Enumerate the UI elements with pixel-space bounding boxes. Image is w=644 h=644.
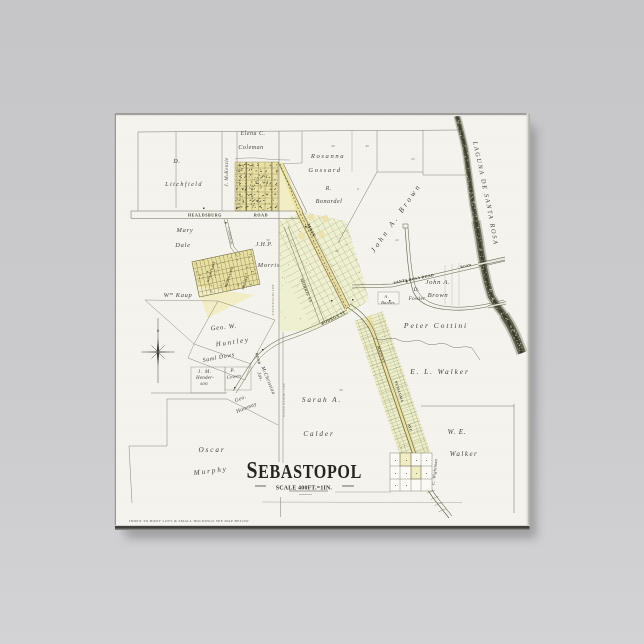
svg-text:Dale: Dale: [174, 242, 191, 249]
svg-text:D.: D.: [172, 158, 181, 165]
svg-text:Morris: Morris: [257, 262, 281, 269]
svg-text:John A.: John A.: [426, 279, 451, 286]
svg-text:J. McKenzie: J. McKenzie: [224, 157, 230, 187]
svg-text:42: 42: [335, 249, 339, 253]
svg-text:9: 9: [357, 187, 359, 191]
svg-text:Gossard: Gossard: [308, 167, 341, 174]
svg-text:30: 30: [266, 238, 270, 242]
svg-text:Oscar: Oscar: [198, 446, 225, 454]
svg-text:SEBASTOPOL: SEBASTOPOL: [247, 456, 362, 484]
svg-text:Barnes: Barnes: [381, 300, 395, 305]
svg-text:45: 45: [411, 157, 415, 161]
svg-text:J. M.: J. M.: [198, 370, 212, 375]
svg-text:Wm Kaup: Wm Kaup: [164, 291, 193, 299]
svg-text:SCALE 400FT.=1IN.: SCALE 400FT.=1IN.: [276, 486, 333, 492]
svg-text:40: 40: [365, 144, 369, 148]
svg-text:D.: D.: [413, 287, 421, 293]
svg-text:Mary: Mary: [175, 227, 193, 234]
svg-text:Rosanna: Rosanna: [310, 153, 345, 160]
svg-text:Elena C.: Elena C.: [240, 131, 266, 137]
svg-text:A.: A.: [383, 294, 390, 299]
svg-text:40: 40: [331, 144, 335, 148]
svg-text:Litchfield: Litchfield: [164, 181, 203, 188]
svg-text:P.: P.: [229, 369, 235, 374]
svg-text:20: 20: [339, 388, 343, 392]
svg-text:Walker: Walker: [450, 450, 479, 458]
svg-text:JONIVE RANCHO LINE: JONIVE RANCHO LINE: [282, 383, 286, 417]
svg-text:R.: R.: [325, 186, 333, 192]
svg-text:22: 22: [395, 238, 399, 242]
svg-text:INDEX TO BODY LOTS & SMALL HOL: INDEX TO BODY LOTS & SMALL HOLDINGS SEE …: [129, 519, 249, 523]
svg-text:E. L. Walker: E. L. Walker: [409, 367, 469, 376]
svg-text:Hender-: Hender-: [195, 376, 214, 381]
svg-text:Coleman: Coleman: [238, 145, 263, 151]
svg-text:Bonardel: Bonardel: [316, 198, 343, 205]
svg-text:Calder: Calder: [303, 430, 334, 438]
svg-text:J.H.P.: J.H.P.: [256, 242, 273, 248]
svg-text:Sarah A.: Sarah A.: [302, 396, 342, 404]
svg-text:Fowler: Fowler: [408, 296, 426, 302]
svg-text:W. E.: W. E.: [448, 428, 467, 436]
svg-text:Brown: Brown: [428, 292, 449, 299]
svg-text:Peter Cottini: Peter Cottini: [403, 321, 468, 330]
svg-text:son: son: [200, 382, 208, 387]
svg-text:HEALDSBURG: HEALDSBURG: [188, 213, 222, 218]
svg-text:ROAD: ROAD: [254, 213, 268, 218]
svg-text:JONIVE RANCHO LINE: JONIVE RANCHO LINE: [272, 284, 275, 315]
